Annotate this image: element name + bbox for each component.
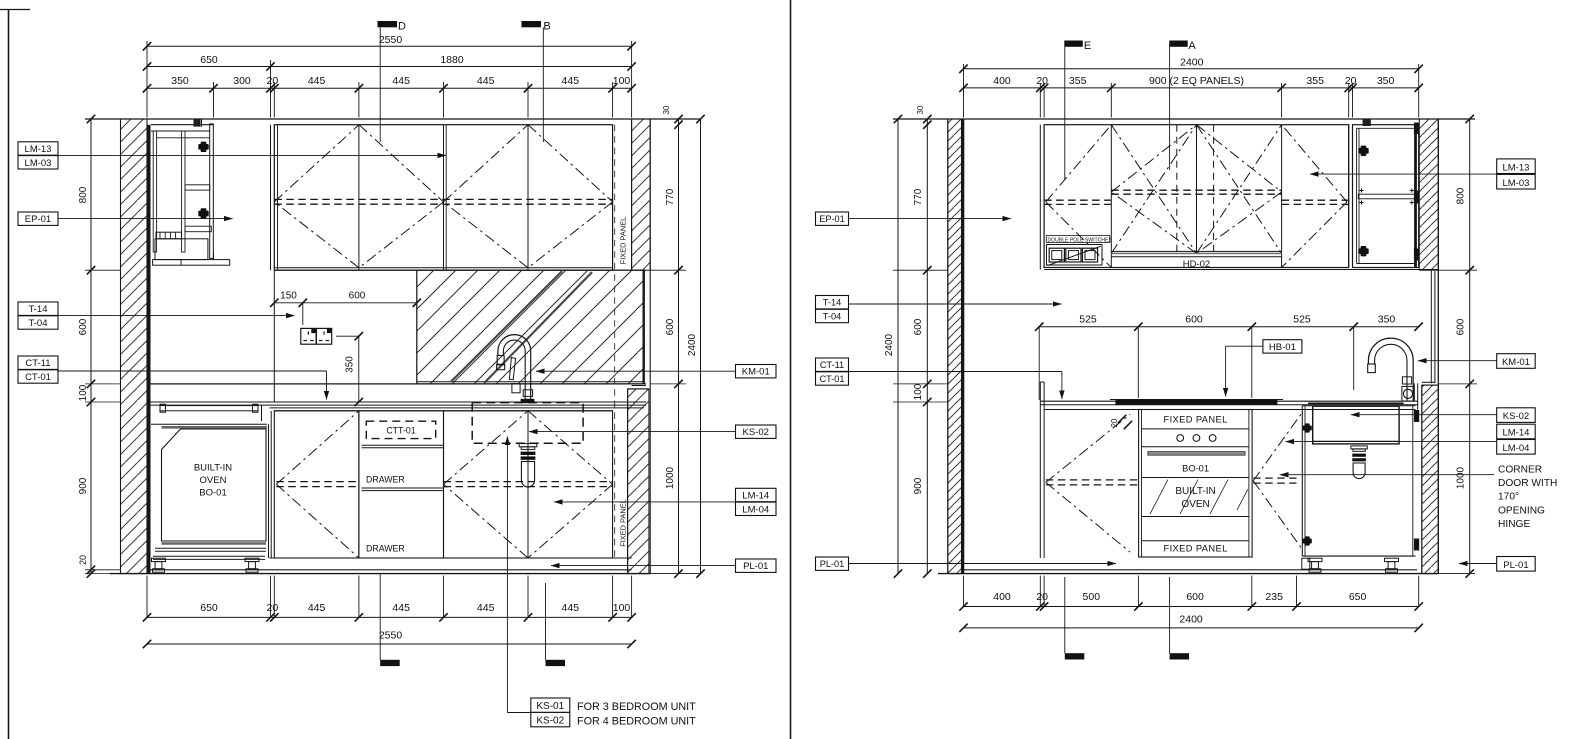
svg-text:2550: 2550 [379,34,403,46]
svg-text:355: 355 [1306,75,1324,87]
svg-text:100: 100 [613,602,631,614]
svg-text:445: 445 [477,75,495,87]
svg-text:FIXED PANEL: FIXED PANEL [619,499,628,547]
svg-text:T-14: T-14 [28,304,47,315]
svg-text:FIXED PANEL: FIXED PANEL [619,217,628,265]
svg-text:600: 600 [1456,318,1467,335]
svg-text:150: 150 [280,290,297,301]
svg-text:1000: 1000 [665,466,676,489]
svg-text:LM-03: LM-03 [25,158,52,169]
svg-text:LM-03: LM-03 [1502,178,1529,189]
svg-text:770: 770 [665,188,676,205]
svg-text:B: B [543,21,550,33]
svg-text:350: 350 [344,356,355,373]
svg-text:2550: 2550 [379,630,403,642]
svg-text:LM-13: LM-13 [25,144,52,155]
svg-text:OPENING: OPENING [1498,505,1545,516]
svg-text:20: 20 [1110,418,1119,427]
svg-text:LM-14: LM-14 [742,491,769,502]
svg-text:650: 650 [200,54,218,66]
svg-text:445: 445 [562,602,580,614]
svg-text:1880: 1880 [440,54,464,66]
svg-text:770: 770 [913,188,924,205]
svg-text:2400: 2400 [884,333,895,356]
svg-text:350: 350 [1378,313,1396,325]
svg-text:600: 600 [78,318,89,335]
svg-text:400: 400 [993,591,1011,603]
svg-text:T-04: T-04 [28,318,47,329]
svg-text:CTT-01: CTT-01 [386,426,415,436]
svg-text:20: 20 [1345,75,1357,87]
svg-text:EP-01: EP-01 [25,214,51,225]
svg-text:DRAWER: DRAWER [366,544,405,554]
svg-text:445: 445 [308,602,326,614]
svg-text:20: 20 [267,75,279,87]
svg-text:100: 100 [78,384,89,401]
svg-text:525: 525 [1079,313,1097,325]
svg-text:900: 900 [913,477,924,494]
svg-text:KM-01: KM-01 [742,367,770,378]
svg-text:500: 500 [1083,591,1101,603]
svg-text:350: 350 [171,75,189,87]
svg-text:KM-01: KM-01 [1502,357,1530,368]
svg-text:30: 30 [662,105,671,114]
svg-text:900: 900 [78,477,89,494]
svg-text:DOOR WITH: DOOR WITH [1498,478,1557,489]
svg-text:445: 445 [392,602,410,614]
svg-text:350: 350 [1377,75,1395,87]
svg-text:30: 30 [916,105,925,114]
svg-text:A: A [1188,40,1196,52]
svg-text:400: 400 [993,75,1011,87]
svg-text:235: 235 [1265,591,1283,603]
svg-text:PL-01: PL-01 [743,561,768,572]
svg-text:D: D [398,21,406,33]
svg-text:CORNER: CORNER [1498,464,1542,475]
svg-text:100: 100 [913,383,924,400]
svg-text:CT-11: CT-11 [820,360,844,370]
svg-text:CT-01: CT-01 [25,372,51,383]
svg-text:650: 650 [200,602,218,614]
svg-text:20: 20 [1036,75,1048,87]
svg-text:2400: 2400 [1179,614,1203,626]
svg-text:CT-11: CT-11 [25,358,50,369]
svg-text:600: 600 [349,290,366,301]
svg-text:170°: 170° [1498,492,1519,503]
svg-text:900 (2 EQ PANELS): 900 (2 EQ PANELS) [1149,75,1244,87]
svg-text:CT-01: CT-01 [819,374,844,384]
svg-text:LM-13: LM-13 [1502,162,1529,173]
svg-text:445: 445 [308,75,326,87]
svg-text:355: 355 [1069,75,1087,87]
svg-text:525: 525 [1293,313,1311,325]
svg-text:600: 600 [665,318,676,335]
svg-text:600: 600 [913,318,924,335]
svg-text:KS-02: KS-02 [1503,411,1529,422]
svg-text:600: 600 [1186,591,1204,603]
svg-text:FIXED PANEL: FIXED PANEL [1164,544,1228,554]
svg-text:DRAWER: DRAWER [366,474,405,484]
svg-text:20: 20 [267,602,279,614]
svg-text:PL-01: PL-01 [1503,560,1528,571]
svg-text:20: 20 [78,555,88,565]
svg-text:BO-01: BO-01 [199,488,226,499]
svg-text:800: 800 [78,186,89,203]
svg-text:PL-01: PL-01 [820,559,845,569]
svg-text:445: 445 [392,75,410,87]
svg-text:T-14: T-14 [823,298,841,308]
svg-text:EP-01: EP-01 [819,214,845,224]
svg-text:KS-02: KS-02 [536,716,564,727]
svg-text:1000: 1000 [1456,466,1467,489]
svg-text:OVEN: OVEN [1181,499,1209,510]
svg-text:HINGE: HINGE [1498,519,1530,530]
svg-text:FOR 4 BEDROOM UNIT: FOR 4 BEDROOM UNIT [577,715,696,727]
svg-text:LM-04: LM-04 [742,504,769,515]
svg-text:FIXED PANEL: FIXED PANEL [1164,415,1228,425]
svg-text:T-04: T-04 [823,312,841,322]
svg-text:600: 600 [1185,313,1203,325]
svg-text:2400: 2400 [1180,56,1204,68]
svg-text:HB-01: HB-01 [1269,342,1296,353]
svg-text:650: 650 [1349,591,1367,603]
svg-text:20: 20 [1036,591,1048,603]
svg-text:BO-01: BO-01 [1182,464,1209,474]
svg-text:300: 300 [233,75,251,87]
svg-text:LM-14: LM-14 [1502,428,1529,439]
svg-text:800: 800 [1456,187,1467,204]
svg-text:BUILT-IN: BUILT-IN [194,463,232,474]
svg-text:445: 445 [477,602,495,614]
svg-text:100: 100 [613,75,631,87]
svg-text:445: 445 [562,75,580,87]
svg-text:FOR 3 BEDROOM UNIT: FOR 3 BEDROOM UNIT [577,701,696,713]
svg-text:BUILT-IN: BUILT-IN [1175,486,1215,497]
svg-text:KS-02: KS-02 [743,427,769,438]
svg-text:KS-01: KS-01 [536,701,564,712]
svg-text:E: E [1084,40,1091,52]
svg-text:HD-02: HD-02 [1183,259,1210,270]
svg-text:LM-04: LM-04 [1502,443,1529,454]
svg-text:OVEN: OVEN [200,475,227,486]
svg-text:2400: 2400 [687,333,698,356]
